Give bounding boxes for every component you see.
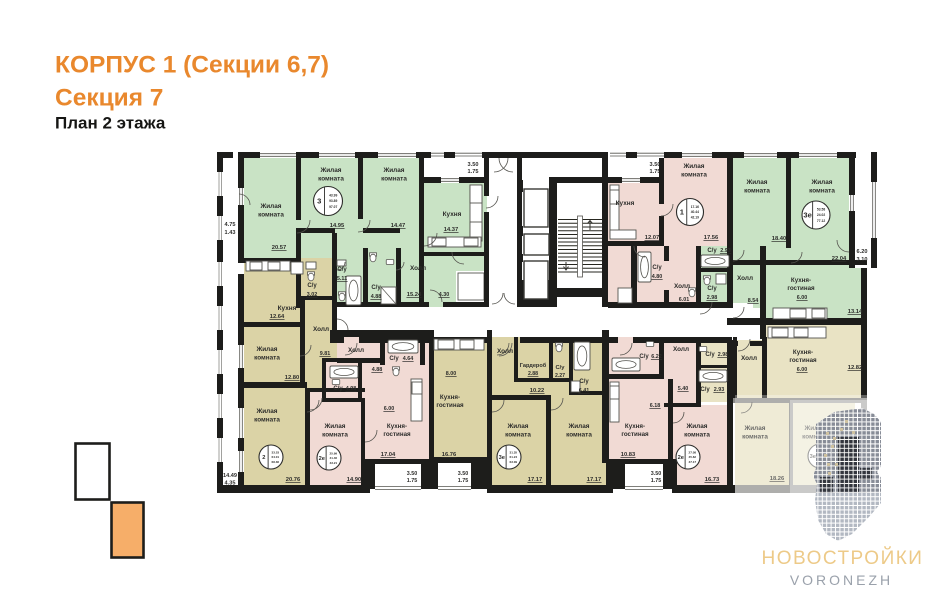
svg-text:4.75: 4.75 [225, 222, 236, 228]
svg-text:гостиная: гостиная [621, 431, 649, 438]
svg-text:2.27: 2.27 [555, 373, 565, 379]
svg-text:3.50: 3.50 [407, 471, 418, 477]
svg-text:17.17: 17.17 [587, 477, 602, 483]
svg-text:С/у: С/у [700, 387, 710, 393]
svg-text:6.22: 6.22 [651, 354, 662, 360]
svg-text:1.75: 1.75 [468, 169, 479, 175]
svg-text:9.81: 9.81 [320, 351, 331, 357]
svg-text:41.46: 41.46 [330, 456, 338, 460]
svg-text:20.76: 20.76 [286, 477, 301, 483]
svg-text:Жилая: Жилая [323, 423, 345, 430]
svg-text:План 2 этажа: План 2 этажа [55, 114, 166, 133]
svg-text:С/у: С/у [389, 356, 399, 362]
svg-text:6.41: 6.41 [579, 388, 590, 394]
svg-text:3.50: 3.50 [468, 162, 479, 168]
svg-text:Холл: Холл [673, 346, 689, 353]
svg-text:2е: 2е [319, 456, 325, 462]
svg-text:Кухня-: Кухня- [793, 349, 813, 356]
svg-text:61.24: 61.24 [510, 455, 518, 459]
svg-text:Жилая: Жилая [685, 423, 707, 430]
svg-text:10.83: 10.83 [621, 452, 636, 458]
svg-text:С/у: С/у [639, 354, 649, 360]
svg-text:77.12: 77.12 [817, 219, 825, 223]
svg-text:3: 3 [317, 197, 321, 206]
svg-text:Кухня-: Кухня- [791, 277, 811, 284]
svg-text:Холл: Холл [313, 326, 329, 333]
svg-text:С/у: С/у [333, 386, 343, 392]
svg-text:3.10: 3.10 [857, 257, 868, 263]
svg-text:43.99: 43.99 [329, 193, 337, 197]
svg-text:Жилая: Жилая [682, 163, 704, 170]
svg-text:С/у: С/у [707, 286, 717, 292]
svg-text:22.04: 22.04 [832, 256, 847, 262]
svg-text:6.00: 6.00 [797, 367, 808, 373]
svg-text:Кухня-: Кухня- [625, 423, 645, 430]
svg-text:Холл: Холл [497, 348, 513, 355]
svg-text:4.64: 4.64 [403, 356, 414, 362]
svg-text:97.07: 97.07 [329, 205, 337, 209]
svg-text:17.56: 17.56 [704, 235, 719, 241]
svg-text:гостиная: гостиная [789, 357, 817, 364]
svg-text:25.99: 25.99 [330, 451, 338, 455]
svg-text:17.17: 17.17 [528, 477, 543, 483]
svg-text:31.35: 31.35 [510, 450, 518, 454]
svg-text:53.58: 53.58 [817, 208, 825, 212]
svg-text:С/у: С/у [555, 365, 565, 371]
svg-text:3.50: 3.50 [651, 471, 662, 477]
svg-text:2.93: 2.93 [720, 248, 731, 254]
svg-text:комната: комната [744, 188, 770, 195]
svg-text:комната: комната [809, 188, 835, 195]
svg-text:1.75: 1.75 [650, 169, 661, 175]
svg-text:68.36: 68.36 [272, 460, 280, 464]
svg-text:Кухня: Кухня [616, 200, 635, 207]
svg-text:40.44: 40.44 [691, 210, 699, 214]
svg-text:2.88: 2.88 [528, 371, 538, 377]
svg-text:Жилая: Жилая [810, 179, 832, 186]
svg-text:3.50: 3.50 [458, 471, 469, 477]
svg-text:4.88: 4.88 [372, 367, 383, 373]
svg-text:5.11: 5.11 [337, 276, 347, 282]
svg-text:18.40: 18.40 [772, 236, 787, 242]
svg-text:20.57: 20.57 [272, 245, 287, 251]
svg-text:Жилая: Жилая [319, 167, 341, 174]
svg-text:47.17: 47.17 [689, 460, 697, 464]
svg-text:Жилая: Жилая [506, 423, 528, 430]
svg-text:1.43: 1.43 [225, 230, 236, 236]
svg-text:4.30: 4.30 [439, 292, 450, 298]
svg-text:1.75: 1.75 [458, 478, 469, 484]
svg-text:2.93: 2.93 [714, 387, 725, 393]
svg-text:комната: комната [505, 432, 531, 439]
svg-text:33.53: 33.53 [272, 450, 280, 454]
svg-text:Жилая: Жилая [745, 179, 767, 186]
svg-text:С/у: С/у [707, 248, 717, 254]
svg-text:6.20: 6.20 [857, 249, 868, 255]
svg-text:VORONEZH: VORONEZH [790, 572, 893, 588]
svg-text:16.76: 16.76 [442, 452, 457, 458]
svg-text:С/у: С/у [371, 285, 381, 291]
svg-text:14.49: 14.49 [223, 473, 237, 479]
svg-text:93.89: 93.89 [329, 199, 337, 203]
svg-text:63.09: 63.09 [510, 460, 518, 464]
svg-text:Жилая: Жилая [255, 346, 277, 353]
svg-text:14.37: 14.37 [444, 227, 459, 233]
svg-text:Гардероб: Гардероб [520, 362, 547, 369]
svg-text:комната: комната [681, 172, 707, 179]
svg-text:4.35: 4.35 [225, 481, 236, 487]
svg-text:14.90: 14.90 [347, 477, 362, 483]
svg-text:Холл: Холл [741, 355, 757, 362]
svg-text:6.01: 6.01 [679, 297, 690, 303]
svg-text:4.80: 4.80 [652, 274, 663, 280]
svg-text:12.07: 12.07 [645, 235, 660, 241]
svg-text:12.80: 12.80 [285, 375, 300, 381]
svg-text:14.47: 14.47 [391, 223, 406, 229]
svg-text:С/у: С/у [652, 265, 662, 271]
svg-text:5.40: 5.40 [678, 386, 689, 392]
svg-text:комната: комната [322, 432, 348, 439]
svg-text:45.82: 45.82 [689, 455, 697, 459]
svg-text:С/у: С/у [579, 379, 589, 385]
svg-text:3.02: 3.02 [307, 292, 318, 298]
svg-text:Холл: Холл [737, 275, 753, 282]
svg-text:17.16: 17.16 [691, 205, 699, 209]
svg-text:43.21: 43.21 [330, 461, 338, 465]
svg-text:12.64: 12.64 [270, 314, 285, 320]
svg-text:комната: комната [258, 212, 284, 219]
svg-text:Кухня: Кухня [443, 211, 462, 218]
svg-text:комната: комната [318, 176, 344, 183]
svg-text:Жилая: Жилая [255, 408, 277, 415]
svg-text:2.98: 2.98 [707, 295, 718, 301]
svg-text:12.82: 12.82 [848, 365, 863, 371]
svg-text:2е: 2е [678, 455, 684, 461]
svg-text:8.54: 8.54 [748, 298, 759, 304]
svg-text:24.02: 24.02 [817, 213, 825, 217]
svg-text:С/у: С/у [705, 352, 715, 358]
svg-text:27.08: 27.08 [689, 450, 697, 454]
svg-text:1.75: 1.75 [407, 478, 418, 484]
svg-text:С/у: С/у [337, 267, 347, 273]
svg-text:Холл: Холл [410, 265, 426, 272]
svg-text:14.95: 14.95 [330, 223, 345, 229]
svg-text:16.73: 16.73 [705, 477, 720, 483]
svg-text:17.04: 17.04 [381, 452, 396, 458]
svg-text:2.98: 2.98 [718, 352, 729, 358]
svg-text:Кухня-: Кухня- [387, 423, 407, 430]
svg-text:Холл: Холл [348, 347, 364, 354]
svg-text:комната: комната [381, 176, 407, 183]
svg-text:Кухня-: Кухня- [440, 394, 460, 401]
svg-text:6.00: 6.00 [797, 295, 808, 301]
svg-text:42.19: 42.19 [691, 216, 699, 220]
svg-text:Кухня: Кухня [278, 305, 297, 312]
svg-text:Жилая: Жилая [259, 203, 281, 210]
svg-text:2: 2 [262, 455, 265, 461]
svg-text:1.75: 1.75 [651, 478, 662, 484]
svg-text:Секция 7: Секция 7 [55, 85, 163, 112]
svg-text:13.14: 13.14 [848, 309, 863, 315]
svg-text:10.22: 10.22 [530, 388, 545, 394]
svg-text:гостиная: гостиная [383, 431, 411, 438]
svg-text:Жилая: Жилая [567, 423, 589, 430]
svg-text:комната: комната [566, 432, 592, 439]
svg-text:Жилая: Жилая [382, 167, 404, 174]
svg-text:С/у: С/у [307, 283, 317, 289]
svg-text:Холл: Холл [674, 283, 690, 290]
svg-text:комната: комната [254, 417, 280, 424]
svg-text:гостиная: гостиная [436, 402, 464, 409]
svg-text:4.88: 4.88 [371, 294, 382, 300]
svg-text:3е: 3е [499, 455, 505, 461]
svg-text:3.50: 3.50 [650, 162, 661, 168]
svg-text:3е: 3е [803, 211, 811, 220]
svg-text:6.00: 6.00 [384, 406, 395, 412]
svg-text:КОРПУС 1 (Секции 6,7): КОРПУС 1 (Секции 6,7) [55, 52, 329, 79]
svg-text:гостиная: гостиная [787, 285, 815, 292]
svg-text:комната: комната [254, 355, 280, 362]
svg-text:комната: комната [684, 432, 710, 439]
svg-text:15.24: 15.24 [407, 292, 422, 298]
svg-text:4.98: 4.98 [346, 386, 357, 392]
svg-text:НОВОСТРОЙКИ: НОВОСТРОЙКИ [762, 547, 924, 569]
svg-text:64.01: 64.01 [272, 455, 280, 459]
svg-text:8.00: 8.00 [446, 371, 457, 377]
svg-text:6.18: 6.18 [650, 403, 661, 409]
